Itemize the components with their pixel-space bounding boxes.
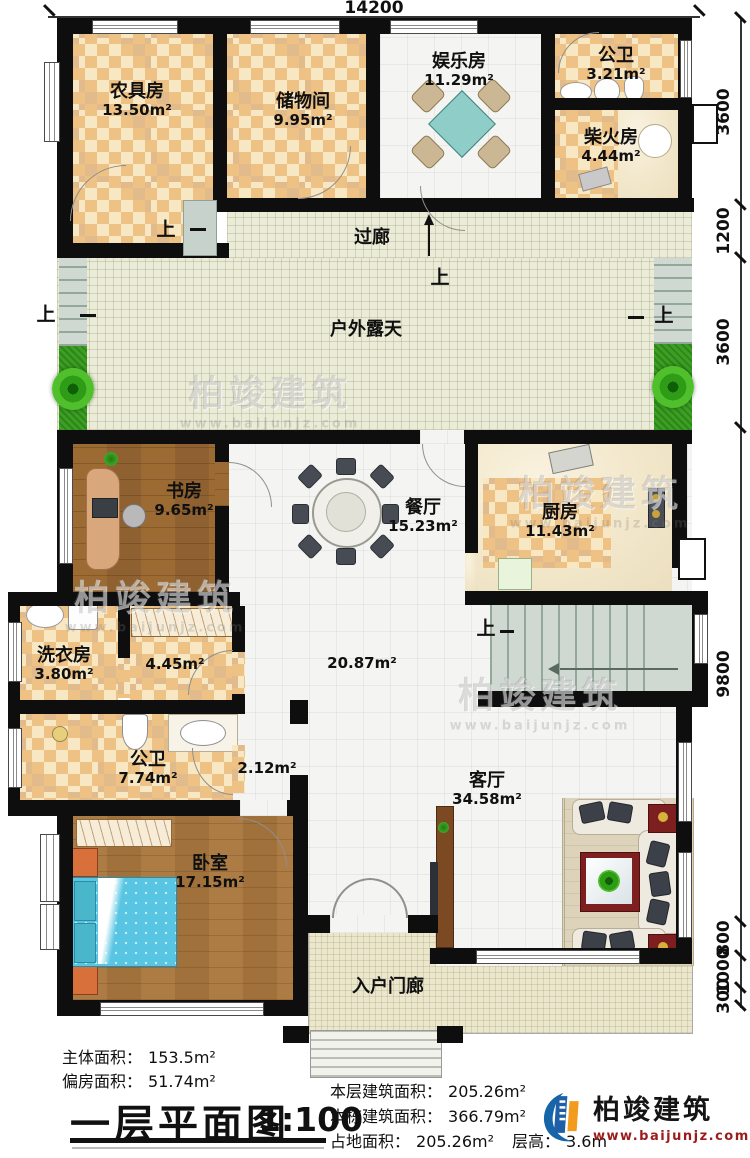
room-label-chufang: 厨房11.43m² [525, 503, 595, 539]
window [40, 904, 60, 950]
wall [283, 1026, 309, 1043]
dim-tick [43, 4, 55, 16]
wall [541, 18, 555, 212]
wardrobe-corridor [131, 608, 233, 637]
door-opening [118, 658, 130, 698]
window [40, 834, 60, 902]
stair-up-label: 上 [654, 306, 673, 327]
stair-dash [628, 316, 644, 319]
window [678, 852, 692, 938]
window [390, 20, 478, 34]
terrace-stairs-right [654, 258, 692, 344]
stair-dash [500, 630, 514, 633]
console-plant-icon [438, 822, 449, 833]
tv-icon [430, 862, 438, 920]
room-label-keting: 客厅34.58m² [452, 771, 522, 807]
brand-url: www.baijunjz.com [593, 1129, 750, 1144]
staircase-arrowhead [548, 663, 559, 675]
window [8, 622, 22, 682]
desk [86, 468, 120, 570]
room-label-canting: 餐厅15.23m² [388, 498, 458, 534]
door-opening [232, 652, 245, 694]
wall [213, 198, 557, 212]
room-label-menlang: 入户门廊 [352, 977, 424, 997]
right-dimension: 300 [714, 978, 734, 1014]
cooktop-burner [652, 510, 660, 518]
plant-left [52, 368, 94, 410]
window [8, 728, 22, 788]
staircase-treads [490, 605, 650, 691]
stat-floor-built-area: 本层建筑面积：205.26m² [330, 1078, 526, 1102]
room-label-nongju: 农具房13.50m² [102, 82, 172, 118]
wall [287, 800, 308, 816]
bath-toilet-icon [122, 714, 148, 750]
wall [366, 18, 380, 212]
window [44, 62, 60, 142]
wall [118, 606, 130, 658]
window [100, 1002, 264, 1016]
wardrobe-bedroom [76, 819, 172, 847]
area-label-corridor: 4.45m² [145, 656, 204, 673]
stair-dash [190, 228, 206, 231]
terrace-stairs-left [59, 258, 87, 346]
wall [290, 700, 308, 724]
room-label-shufang: 书房9.65m² [154, 482, 213, 518]
cooktop-burner [652, 494, 660, 502]
door-bump [678, 538, 706, 580]
fridge-icon [498, 558, 532, 590]
title-underline-thin [72, 1147, 324, 1149]
wall [213, 30, 227, 206]
wall [554, 198, 694, 212]
window [92, 20, 178, 34]
room-label-xiyifang: 洗衣房3.80m² [34, 646, 93, 682]
right-dimension: 3600 [714, 88, 734, 135]
wall [465, 591, 708, 605]
bed-pillow [74, 923, 96, 963]
door-opening [465, 553, 478, 591]
window [680, 40, 692, 98]
porch-floor-right [435, 966, 693, 1034]
wall [293, 816, 308, 1002]
wall [8, 592, 240, 606]
title-underline [70, 1138, 326, 1143]
area-label-passage: 2.12m² [237, 760, 296, 777]
sofa-cushion [648, 871, 671, 898]
side-table-lamp [658, 812, 668, 822]
table-plant-icon [598, 870, 620, 892]
dining-table-inner [326, 492, 366, 532]
dim-tick [693, 4, 705, 16]
wall [478, 691, 708, 707]
stair-arrow-head [424, 214, 434, 225]
top-dimension: 14200 [344, 0, 403, 18]
floor-plan-image: 农具房13.50m² 储物间9.95m² 娱乐房11.29m² 公卫3.21m²… [0, 0, 750, 1158]
stair-up-label: 上 [156, 220, 175, 241]
wall [57, 430, 692, 444]
bath-sink-icon [180, 720, 226, 746]
wall [437, 1026, 463, 1043]
bed-blanket [98, 878, 128, 964]
bed-pillow [74, 881, 96, 921]
area-label-hall: 20.87m² [327, 655, 397, 672]
room-label-chaihuo: 柴火房4.44m² [581, 128, 640, 164]
wall [465, 443, 478, 553]
window [250, 20, 340, 34]
door-opening [240, 800, 287, 816]
right-dimension: 9800 [714, 650, 734, 697]
desk-plant-icon [104, 452, 118, 466]
stair-dash [80, 314, 96, 317]
right-dim-line [740, 18, 742, 1008]
wall [554, 98, 678, 110]
pot-icon [638, 124, 672, 158]
door-opening [215, 462, 229, 506]
right-dimension: 1200 [714, 207, 734, 254]
room-label-chuwu: 储物间9.95m² [273, 92, 332, 128]
stat-main-area: 主体面积：153.5m² [62, 1044, 216, 1068]
window [678, 742, 692, 822]
window [476, 950, 640, 964]
window [694, 614, 708, 664]
window [59, 468, 73, 564]
brand-name: 柏竣建筑 [593, 1088, 750, 1127]
wall [8, 700, 245, 714]
monitor-icon [92, 498, 118, 518]
terrace-floor-huwai [57, 258, 692, 439]
dining-chair [292, 504, 309, 524]
stair-up-label: 上 [430, 268, 449, 289]
dining-chair [336, 548, 356, 565]
sofa-cushion [607, 801, 634, 824]
stat-side-area: 偏房面积：51.74m² [62, 1068, 216, 1092]
staircase-rail [560, 668, 678, 670]
dining-chair [336, 458, 356, 475]
door-opening [420, 430, 464, 444]
brand-logo: 柏竣建筑 www.baijunjz.com [537, 1088, 750, 1146]
brand-logo-icon [537, 1088, 587, 1146]
plant-right [652, 366, 694, 408]
room-label-yule: 娱乐房11.29m² [424, 52, 494, 88]
room-label-woshi: 卧室17.15m² [175, 854, 245, 890]
shower-icon [52, 726, 68, 742]
room-label-gongwei-main: 公卫7.74m² [118, 750, 177, 786]
porch-steps [310, 1030, 442, 1078]
stat-footprint-area: 占地面积：205.26m² [330, 1128, 494, 1152]
room-label-gongwei-top: 公卫3.21m² [586, 46, 645, 82]
room-label-huwai: 户外露天 [330, 320, 402, 340]
wall [8, 800, 253, 816]
room-label-guolang: 过廊 [354, 228, 390, 248]
right-dimension: 3600 [714, 318, 734, 365]
stat-building-built-area: 本栋建筑面积：366.79m² [330, 1103, 526, 1127]
stair-arrow-line [428, 224, 430, 256]
stair-up-label: 上 [36, 305, 55, 326]
desk-chair [122, 504, 146, 528]
stair-up-label: 上 [476, 619, 495, 640]
wall [290, 775, 308, 802]
